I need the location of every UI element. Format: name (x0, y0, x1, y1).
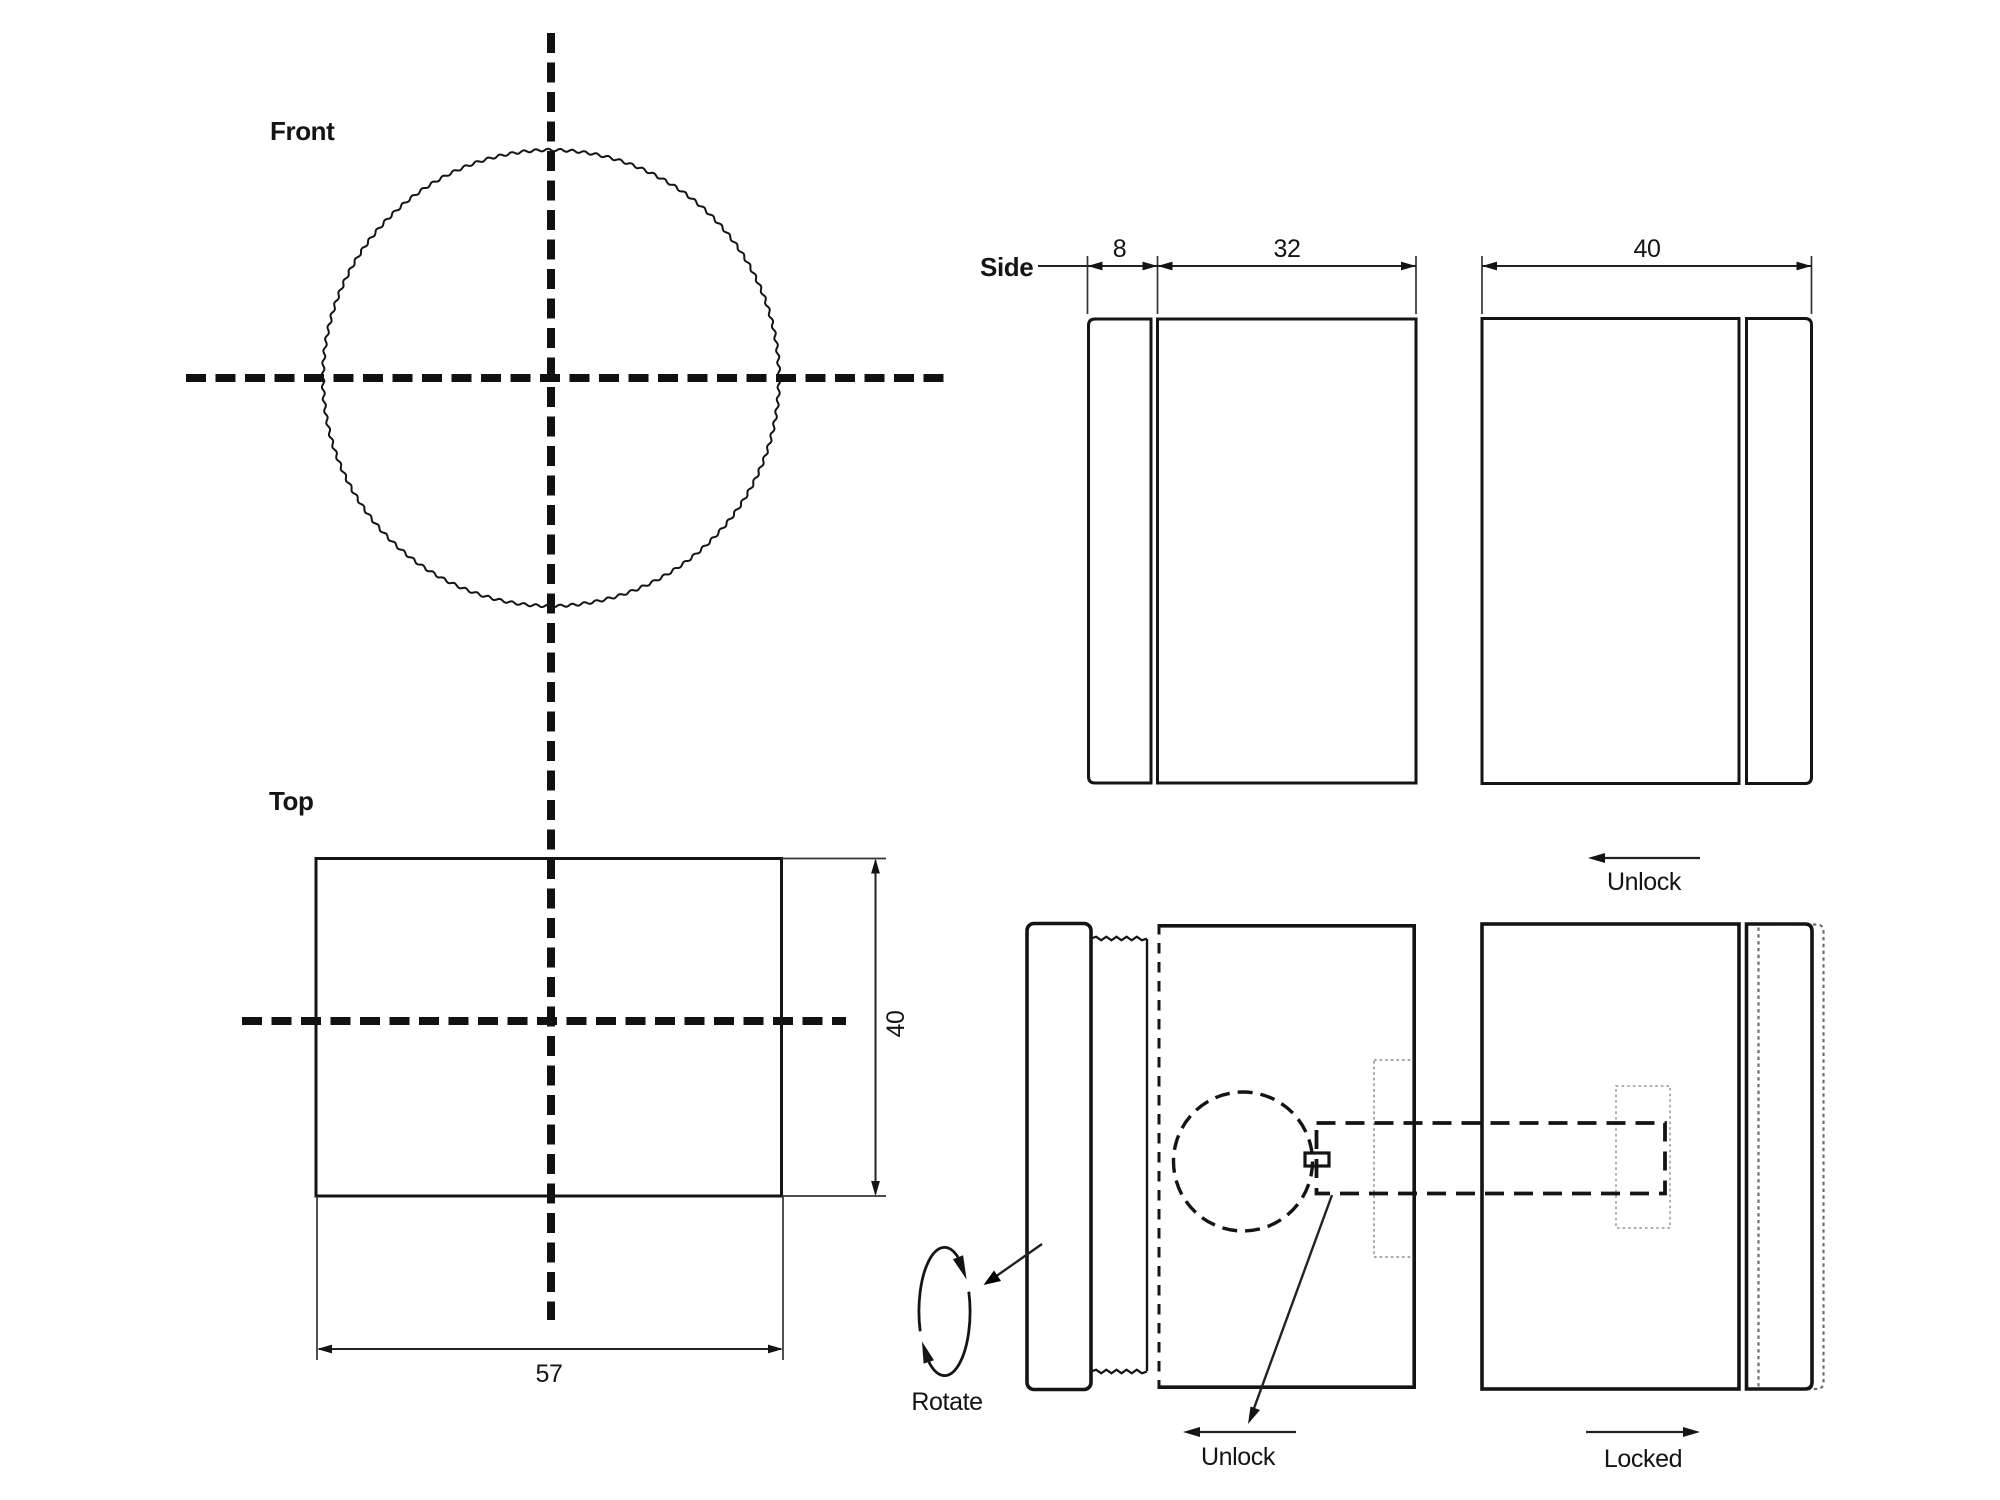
svg-text:Unlock: Unlock (1201, 1443, 1276, 1471)
svg-text:Top: Top (269, 786, 314, 816)
svg-text:Front: Front (270, 116, 335, 146)
svg-text:40: 40 (1633, 235, 1660, 263)
svg-text:Unlock: Unlock (1607, 868, 1682, 896)
svg-text:57: 57 (535, 1360, 562, 1388)
svg-text:40: 40 (882, 1010, 910, 1037)
svg-text:Rotate: Rotate (911, 1388, 982, 1416)
svg-text:8: 8 (1113, 235, 1127, 263)
svg-text:Locked: Locked (1604, 1445, 1682, 1473)
svg-text:Side: Side (980, 252, 1033, 282)
svg-text:32: 32 (1273, 235, 1300, 263)
